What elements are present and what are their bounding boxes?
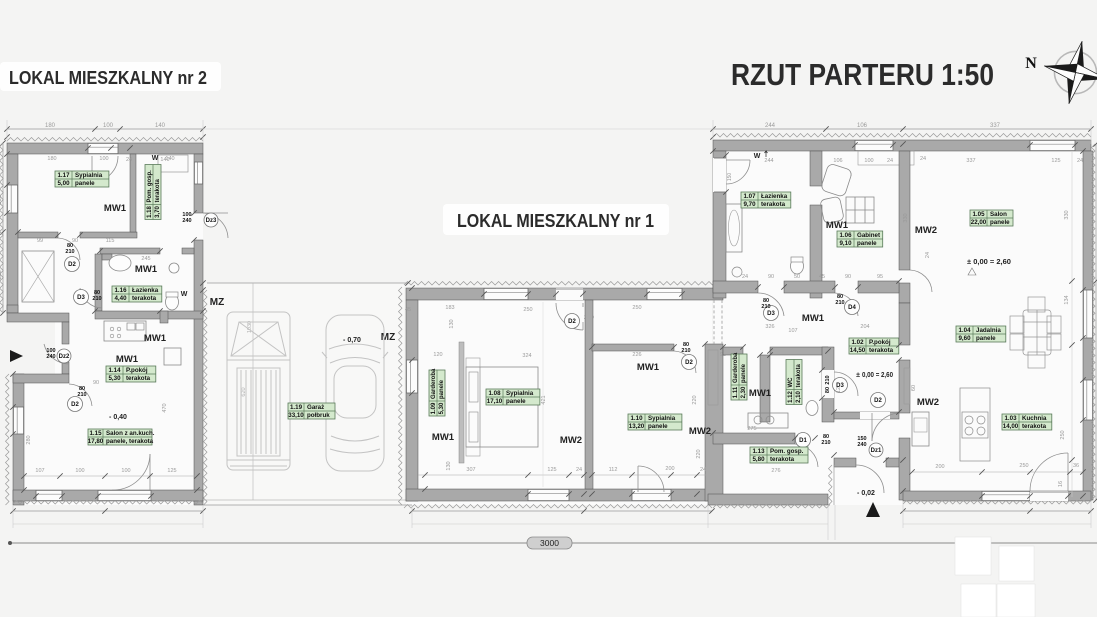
svg-text:100: 100	[75, 468, 84, 474]
svg-text:326: 326	[765, 324, 774, 330]
svg-text:Sypialnia: Sypialnia	[648, 415, 676, 422]
svg-text:Sypialnia: Sypialnia	[506, 390, 534, 397]
svg-text:D2: D2	[71, 402, 79, 408]
svg-text:240: 240	[182, 218, 191, 224]
svg-text:130: 130	[446, 461, 452, 470]
svg-text:90: 90	[72, 238, 78, 244]
svg-text:330: 330	[903, 213, 909, 222]
svg-text:panele: panele	[741, 363, 747, 383]
svg-text:45: 45	[405, 307, 411, 313]
svg-text:panele: panele	[506, 398, 526, 405]
svg-text:9,70: 9,70	[743, 201, 756, 208]
svg-text:Dz2: Dz2	[59, 354, 70, 360]
svg-text:MW1: MW1	[749, 388, 772, 399]
svg-text:250: 250	[1060, 430, 1066, 439]
svg-text:D4: D4	[848, 305, 856, 311]
svg-text:470: 470	[162, 403, 168, 412]
svg-text:panele: panele	[75, 180, 95, 187]
svg-text:33,10: 33,10	[288, 412, 304, 419]
svg-text:240: 240	[857, 442, 866, 448]
svg-text:99: 99	[37, 238, 43, 244]
svg-text:N: N	[1025, 55, 1037, 72]
svg-text:3000: 3000	[540, 538, 559, 548]
svg-text:1.13: 1.13	[752, 448, 765, 455]
svg-text:3,70: 3,70	[155, 206, 161, 218]
svg-text:17,10: 17,10	[487, 398, 503, 405]
svg-text:- 0,02: - 0,02	[857, 490, 875, 497]
svg-text:P.pokój: P.pokój	[869, 339, 891, 346]
svg-text:terakota: terakota	[761, 201, 786, 208]
svg-text:240: 240	[46, 354, 55, 360]
svg-text:60: 60	[911, 385, 917, 391]
svg-text:1.08: 1.08	[488, 390, 501, 397]
svg-text:330: 330	[1064, 210, 1070, 219]
svg-text:MW2: MW2	[689, 426, 711, 437]
svg-text:24: 24	[1077, 158, 1083, 164]
svg-text:36: 36	[1073, 463, 1079, 469]
svg-text:MZ: MZ	[381, 332, 395, 343]
svg-text:80: 80	[825, 387, 831, 393]
svg-text:panele: panele	[857, 240, 877, 247]
svg-text:Pom. gosp.: Pom. gosp.	[147, 170, 153, 203]
svg-text:220: 220	[696, 449, 702, 458]
svg-text:24: 24	[700, 467, 706, 473]
svg-text:22,00: 22,00	[971, 219, 987, 226]
svg-text:125: 125	[1051, 158, 1060, 164]
svg-text:2,30: 2,30	[741, 386, 747, 398]
svg-text:5,30: 5,30	[108, 375, 121, 382]
svg-text:16: 16	[1058, 481, 1064, 487]
svg-text:210: 210	[92, 296, 101, 302]
svg-text:125: 125	[167, 468, 176, 474]
svg-text:1.17: 1.17	[57, 172, 70, 179]
svg-text:5,30: 5,30	[439, 402, 445, 414]
svg-text:terakota: terakota	[1022, 423, 1047, 430]
svg-text:9,60: 9,60	[958, 335, 971, 342]
svg-text:112: 112	[609, 467, 618, 473]
svg-text:90: 90	[845, 274, 851, 280]
svg-text:MW1: MW1	[104, 203, 127, 214]
svg-text:terakota: terakota	[126, 375, 151, 382]
svg-text:panele, terakota: panele, terakota	[106, 438, 154, 445]
svg-text:1.19: 1.19	[290, 404, 303, 411]
svg-text:244: 244	[764, 158, 773, 164]
svg-text:275: 275	[747, 426, 756, 432]
svg-text:421: 421	[541, 395, 547, 404]
svg-text:106: 106	[833, 158, 842, 164]
svg-text:Salon: Salon	[990, 211, 1007, 218]
svg-text:210: 210	[77, 392, 86, 398]
svg-text:210: 210	[825, 375, 831, 384]
svg-text:95: 95	[877, 274, 883, 280]
svg-text:204: 204	[860, 324, 869, 330]
svg-text:Jadalnia: Jadalnia	[976, 327, 1001, 334]
svg-text:- 0,40: - 0,40	[109, 414, 127, 421]
svg-text:24: 24	[920, 156, 926, 162]
svg-text:210: 210	[835, 300, 844, 306]
svg-text:9,10: 9,10	[839, 240, 852, 247]
svg-text:MW1: MW1	[135, 264, 158, 275]
svg-text:D2: D2	[685, 360, 693, 366]
svg-text:1.06: 1.06	[839, 232, 852, 239]
svg-text:D3: D3	[767, 311, 775, 317]
svg-text:terakota: terakota	[869, 347, 894, 354]
svg-text:280: 280	[26, 435, 32, 444]
svg-text:MW1: MW1	[637, 362, 660, 373]
svg-text:180: 180	[47, 156, 56, 162]
svg-text:D1: D1	[799, 438, 807, 444]
svg-text:panele: panele	[439, 379, 445, 399]
svg-text:250: 250	[1019, 463, 1028, 469]
svg-text:MW1: MW1	[116, 354, 139, 365]
svg-text:200: 200	[665, 466, 674, 472]
svg-text:Pom. gosp.: Pom. gosp.	[770, 448, 804, 455]
svg-text:1.16: 1.16	[114, 287, 127, 294]
svg-text:200: 200	[935, 464, 944, 470]
svg-text:307: 307	[466, 467, 475, 473]
svg-text:MW1: MW1	[144, 333, 167, 344]
svg-text:2,10: 2,10	[796, 391, 802, 403]
svg-text:100: 100	[121, 468, 130, 474]
svg-text:24: 24	[126, 157, 132, 163]
svg-text:panele: panele	[976, 335, 996, 342]
svg-text:Garaż: Garaż	[307, 404, 324, 411]
svg-text:panele: panele	[648, 423, 668, 430]
svg-text:±: ±	[856, 372, 860, 379]
svg-text:1.15: 1.15	[89, 430, 102, 437]
svg-text:± 0,00 = 2,60: ± 0,00 = 2,60	[967, 257, 1011, 266]
svg-text:90: 90	[93, 380, 99, 386]
svg-text:- 0,70: - 0,70	[343, 337, 361, 344]
svg-text:panele: panele	[990, 219, 1010, 226]
svg-text:14,00: 14,00	[1003, 423, 1019, 430]
svg-text:W: W	[181, 291, 188, 298]
svg-text:Garderoba: Garderoba	[733, 352, 739, 383]
svg-text:276: 276	[771, 468, 780, 474]
svg-text:terakota: terakota	[796, 363, 802, 387]
svg-text:terakota: terakota	[770, 456, 795, 463]
svg-text:D2: D2	[68, 262, 76, 268]
svg-text:106: 106	[857, 123, 868, 129]
svg-text:LOKAL MIESZKALNY nr 2: LOKAL MIESZKALNY nr 2	[9, 68, 207, 88]
svg-text:MZ: MZ	[210, 297, 224, 308]
svg-text:1.09: 1.09	[431, 402, 437, 414]
svg-text:1.02: 1.02	[851, 339, 864, 346]
svg-text:337: 337	[990, 123, 1001, 129]
svg-text:100: 100	[103, 123, 114, 129]
svg-text:D2: D2	[874, 398, 882, 404]
svg-text:226: 226	[632, 352, 641, 358]
svg-text:210: 210	[821, 440, 830, 446]
svg-text:1.03: 1.03	[1004, 415, 1017, 422]
svg-text:4,40: 4,40	[114, 295, 127, 302]
svg-text:0,00 = 2,60: 0,00 = 2,60	[862, 372, 893, 379]
svg-text:D3: D3	[77, 295, 85, 301]
svg-text:134: 134	[1064, 295, 1070, 304]
svg-text:1.14: 1.14	[108, 367, 121, 374]
svg-text:połbruk: połbruk	[307, 412, 330, 419]
svg-text:245: 245	[141, 256, 150, 262]
svg-text:125: 125	[547, 467, 556, 473]
svg-text:5,80: 5,80	[752, 456, 765, 463]
svg-text:17,80: 17,80	[88, 438, 104, 445]
svg-text:1.04: 1.04	[958, 327, 971, 334]
svg-text:Dz1: Dz1	[871, 448, 882, 454]
svg-text:24: 24	[887, 158, 893, 164]
svg-text:324: 324	[522, 353, 531, 359]
svg-text:1.12: 1.12	[788, 391, 794, 403]
svg-text:terakota: terakota	[132, 295, 157, 302]
svg-text:Garderoba: Garderoba	[431, 368, 437, 399]
svg-text:115: 115	[106, 238, 115, 244]
svg-text:MW1: MW1	[826, 220, 849, 231]
svg-text:1.18: 1.18	[147, 206, 153, 218]
svg-text:220: 220	[692, 395, 698, 404]
svg-text:5,00: 5,00	[57, 180, 70, 187]
svg-text:150: 150	[727, 173, 733, 182]
svg-text:1.10: 1.10	[630, 415, 643, 422]
svg-text:107: 107	[788, 328, 797, 334]
svg-text:Kuchnia: Kuchnia	[1022, 415, 1047, 422]
svg-text:RZUT PARTERU 1:50: RZUT PARTERU 1:50	[731, 57, 994, 92]
svg-text:250: 250	[632, 305, 641, 311]
svg-text:337: 337	[966, 158, 975, 164]
svg-text:Dz3: Dz3	[206, 218, 217, 224]
svg-text:WC: WC	[788, 377, 794, 388]
svg-text:45: 45	[819, 274, 825, 280]
svg-text:W: W	[754, 153, 761, 160]
svg-text:LOKAL MIESZKALNY nr 1: LOKAL MIESZKALNY nr 1	[457, 211, 654, 231]
svg-text:24: 24	[925, 252, 931, 258]
svg-text:MW1: MW1	[802, 313, 825, 324]
svg-text:266: 266	[0, 194, 3, 205]
svg-text:210: 210	[761, 304, 770, 310]
svg-text:MW2: MW2	[915, 225, 937, 236]
svg-text:D2: D2	[568, 319, 576, 325]
svg-text:210: 210	[65, 249, 74, 255]
svg-text:Gabinet: Gabinet	[857, 232, 880, 239]
svg-text:MW2: MW2	[560, 435, 582, 446]
svg-text:180: 180	[45, 123, 56, 129]
svg-text:P.pokój: P.pokój	[126, 367, 148, 374]
svg-text:50: 50	[794, 274, 800, 280]
svg-text:W: W	[152, 155, 159, 162]
svg-text:24: 24	[576, 467, 582, 473]
svg-text:140: 140	[155, 123, 166, 129]
svg-text:100: 100	[99, 156, 108, 162]
svg-text:90: 90	[768, 274, 774, 280]
svg-text:100: 100	[864, 158, 873, 164]
svg-text:140: 140	[160, 157, 169, 163]
svg-text:12: 12	[836, 387, 842, 393]
svg-text:24: 24	[742, 274, 748, 280]
svg-text:MW2: MW2	[917, 397, 939, 408]
svg-text:terakota: terakota	[155, 178, 161, 202]
svg-text:Łazienka: Łazienka	[761, 193, 788, 200]
svg-text:14,50: 14,50	[850, 347, 866, 354]
svg-text:Salon z an.kuch.: Salon z an.kuch.	[106, 430, 155, 437]
svg-text:244: 244	[765, 123, 776, 129]
svg-text:120: 120	[433, 352, 442, 358]
svg-text:1.05: 1.05	[972, 211, 985, 218]
svg-text:1.11: 1.11	[733, 386, 739, 398]
svg-text:250: 250	[523, 307, 532, 313]
svg-text:13,20: 13,20	[629, 423, 645, 430]
svg-text:183: 183	[445, 305, 454, 311]
svg-text:130: 130	[449, 319, 455, 328]
svg-text:1.07: 1.07	[743, 193, 756, 200]
svg-text:210: 210	[681, 348, 690, 354]
svg-text:Sypialnia: Sypialnia	[75, 172, 103, 179]
svg-text:Łazienka: Łazienka	[132, 287, 159, 294]
svg-text:107: 107	[35, 468, 44, 474]
svg-text:MW1: MW1	[432, 432, 455, 443]
